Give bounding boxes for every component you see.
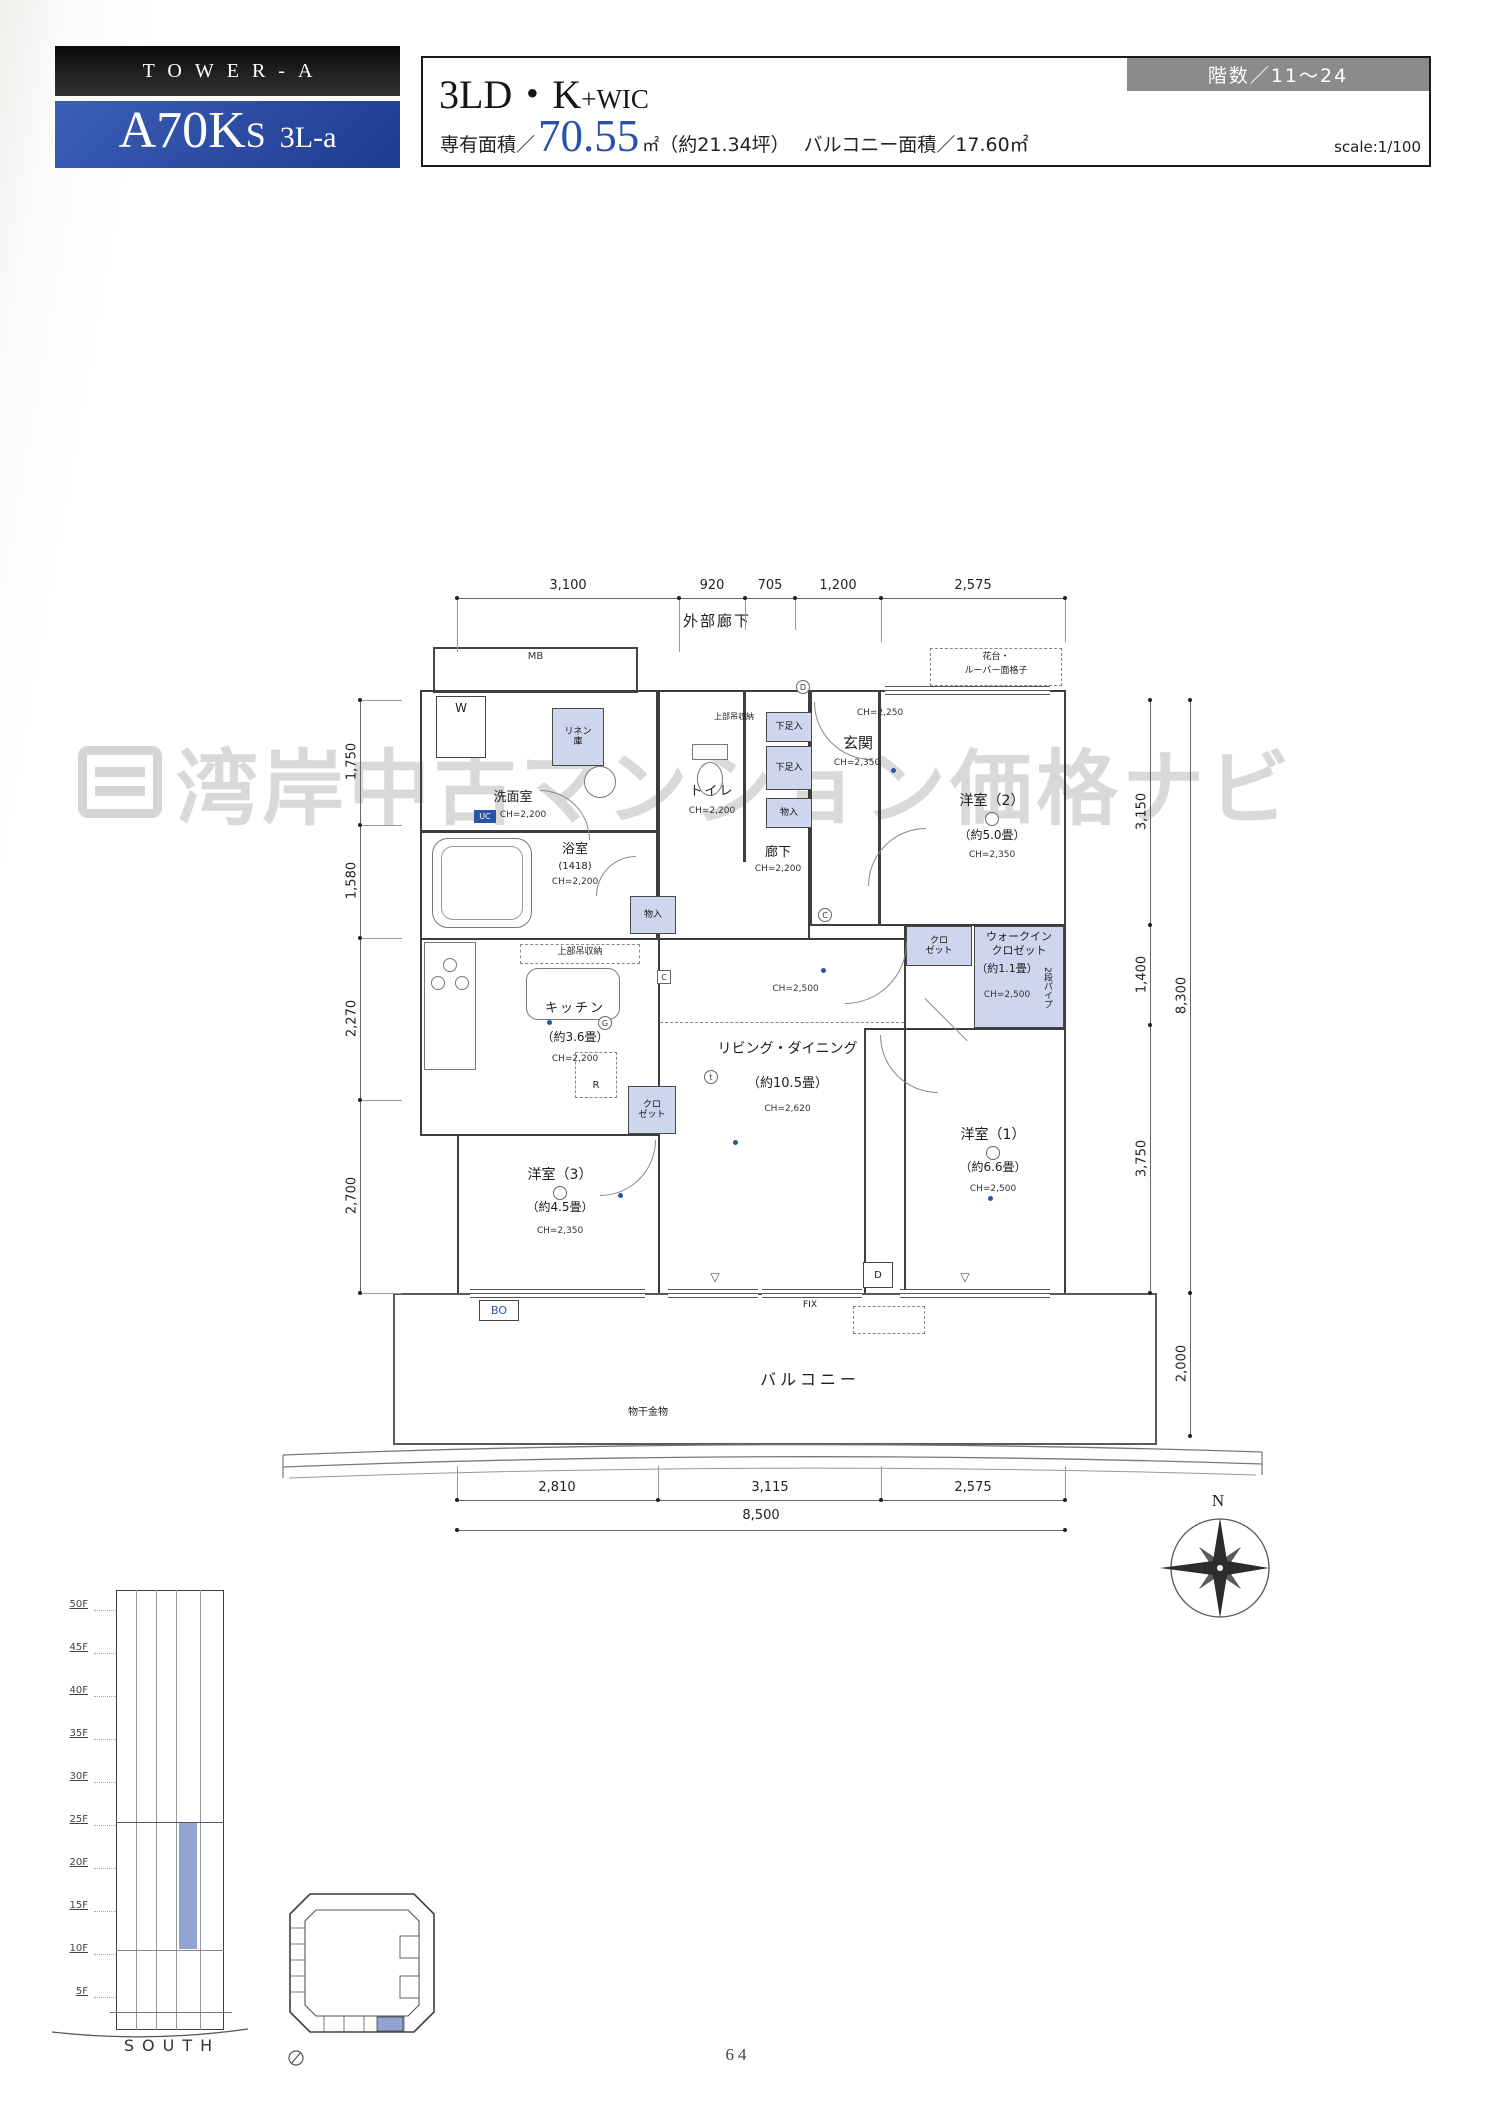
elevation-column-line — [176, 1590, 177, 2030]
elevation-column-line — [136, 1590, 137, 2030]
floor-label-25f: 25F — [52, 1813, 88, 1826]
south-label: SOUTH — [102, 2036, 242, 2057]
floor-label-45f: 45F — [52, 1641, 88, 1654]
floor-plan-page: TOWER-A A70K S 3L-a 階数／11〜24 3LD・K +WIC … — [0, 0, 1500, 2122]
key-plan-orientation-icon — [286, 2048, 306, 2068]
key-plan-footprint — [282, 1888, 444, 2046]
floor-label-10f: 10F — [52, 1942, 88, 1955]
elevation-highlight-floors-11-24 — [179, 1823, 197, 1949]
floor-label-35f: 35F — [52, 1727, 88, 1740]
floor-label-30f: 30F — [52, 1770, 88, 1783]
elevation-building-outline — [116, 1590, 224, 2030]
plan-curves — [0, 0, 1500, 2122]
page-number: 64 — [703, 2044, 773, 2066]
floor-label-40f: 40F — [52, 1684, 88, 1697]
elevation-base-line — [110, 2012, 232, 2013]
elevation-column-line — [156, 1590, 157, 2030]
floor-label-15f: 15F — [52, 1899, 88, 1912]
elevation-column-line — [200, 1590, 201, 2030]
elevation-25f-line — [116, 1822, 224, 1823]
elevation-10f-line — [116, 1950, 224, 1951]
floor-label-20f: 20F — [52, 1856, 88, 1869]
floor-label-50f: 50F — [52, 1598, 88, 1611]
floor-label-5f: 5F — [52, 1985, 88, 1998]
